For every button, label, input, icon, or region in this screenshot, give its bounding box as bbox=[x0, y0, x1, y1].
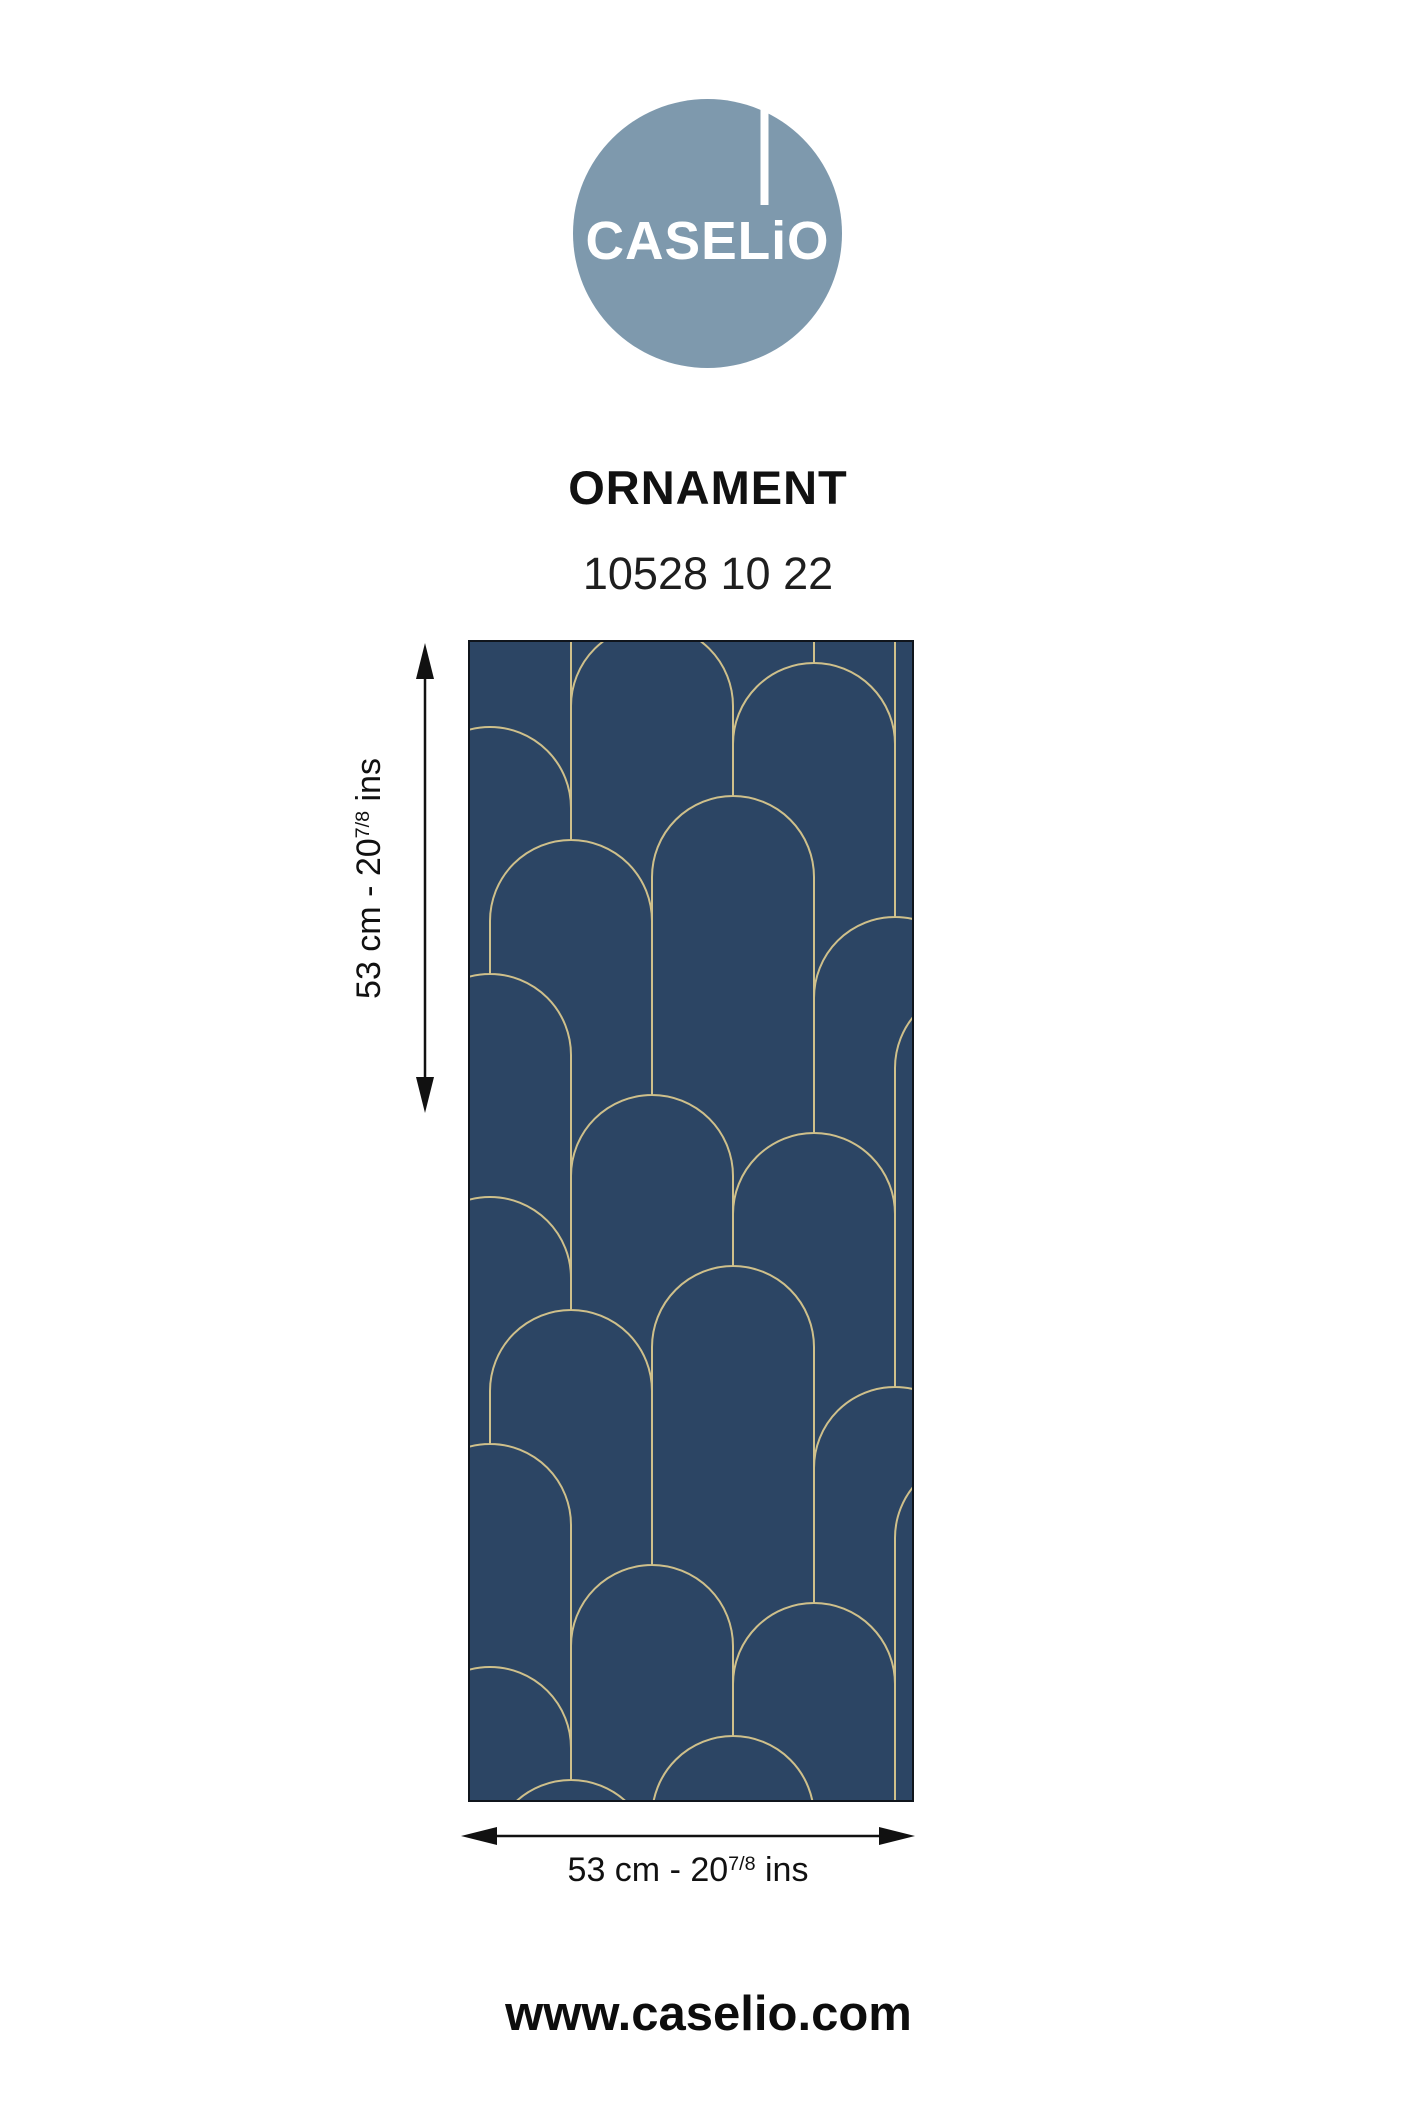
arrowhead-up-icon bbox=[416, 643, 434, 679]
arrowhead-down-icon bbox=[416, 1077, 434, 1113]
width-arrow bbox=[459, 1821, 917, 1851]
arch-pattern bbox=[470, 642, 912, 1800]
arrowhead-right-icon bbox=[879, 1827, 915, 1845]
arrowhead-left-icon bbox=[461, 1827, 497, 1845]
width-dim-text: 53 cm - 20 bbox=[568, 1851, 729, 1889]
width-dim-fraction: 7/8 bbox=[728, 1853, 755, 1875]
caselio-logo: CASELiO bbox=[573, 99, 842, 368]
height-dim-unit: ins bbox=[350, 758, 388, 811]
width-dim-unit: ins bbox=[756, 1851, 809, 1889]
height-dim-text: 53 cm - 20 bbox=[350, 838, 388, 999]
wallpaper-swatch bbox=[468, 640, 914, 1802]
height-dim-fraction: 7/8 bbox=[352, 810, 374, 837]
product-title: ORNAMENT bbox=[358, 460, 1058, 515]
logo-wordmark: CASELiO bbox=[586, 211, 830, 271]
height-arrow bbox=[411, 641, 439, 1115]
logo-i-bar bbox=[761, 110, 769, 205]
height-dimension-label: 53 cm - 207/8 ins bbox=[330, 641, 408, 1115]
width-dimension-label: 53 cm - 207/8 ins bbox=[458, 1851, 918, 1890]
footer-url: www.caselio.com bbox=[0, 1986, 1417, 2042]
product-sheet: CASELiO ORNAMENT 10528 10 22 53 cm - 207… bbox=[0, 0, 1417, 2126]
product-reference: 10528 10 22 bbox=[358, 548, 1058, 600]
